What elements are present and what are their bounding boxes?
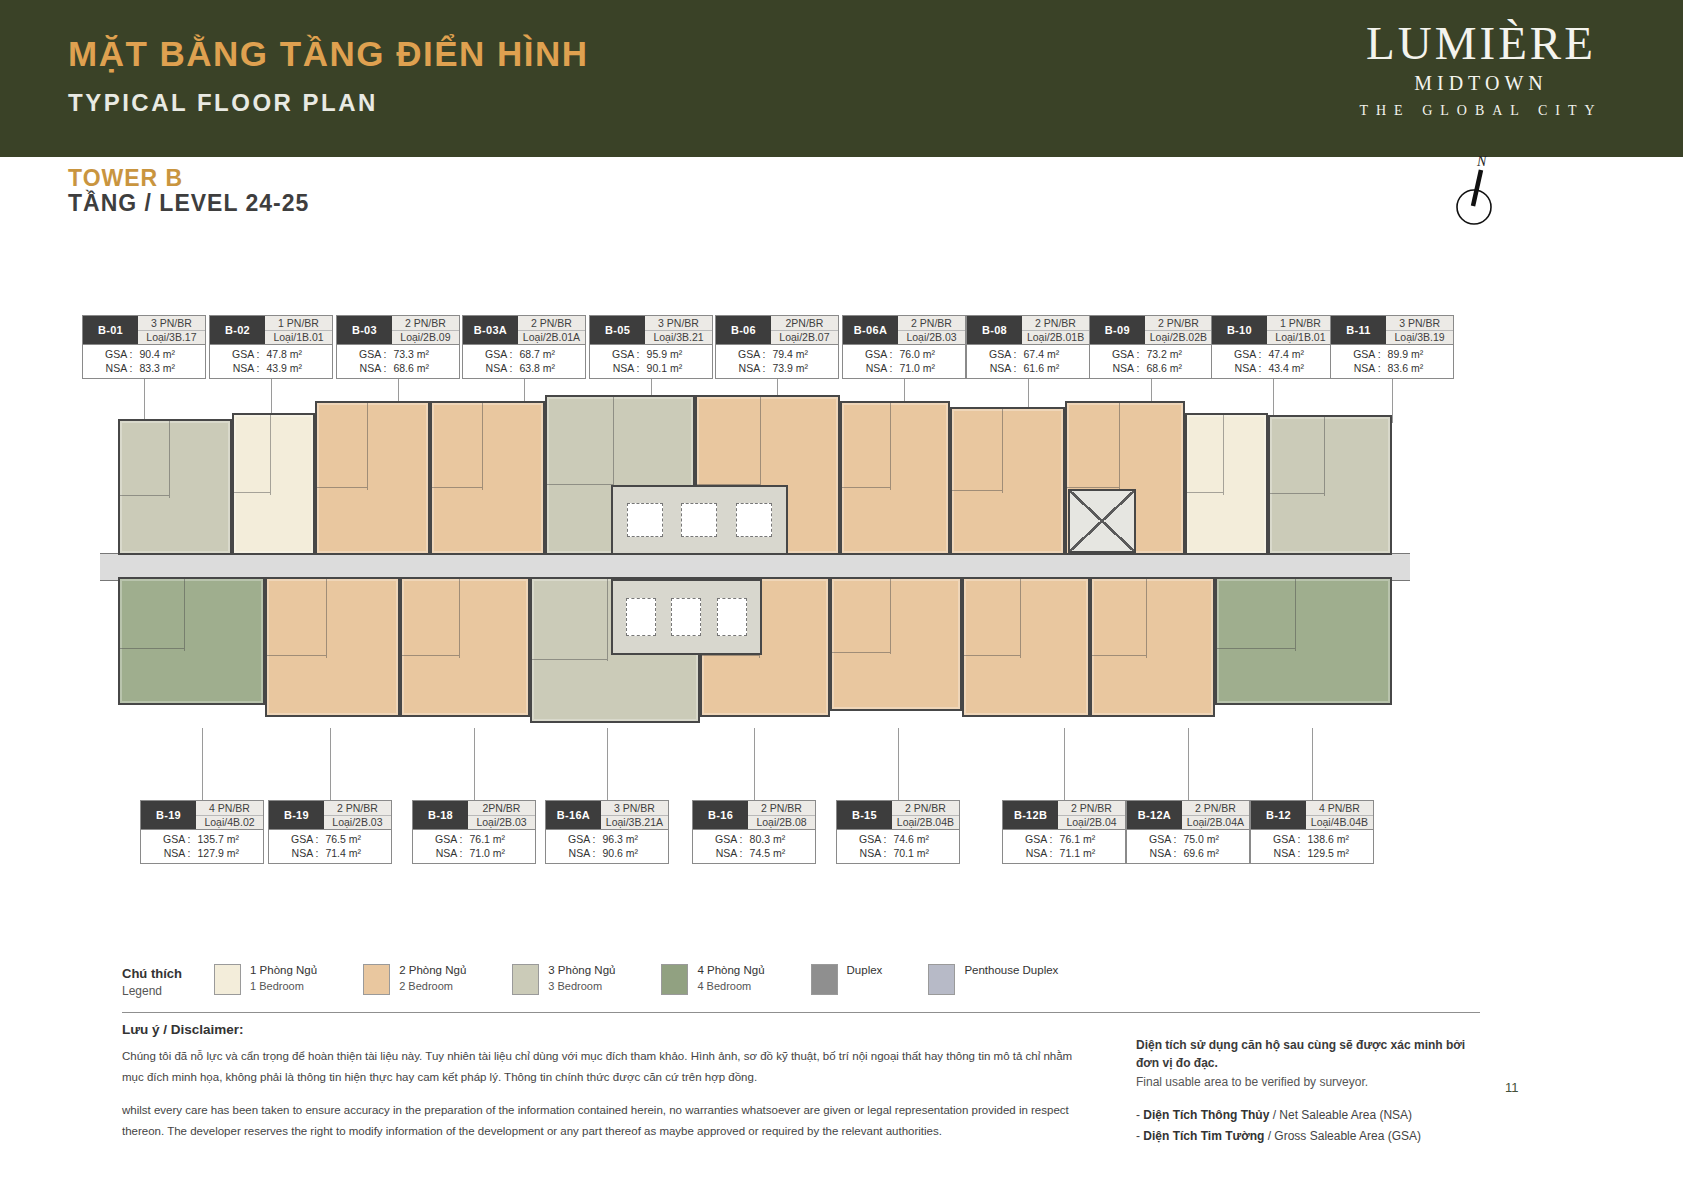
unit-card-header: B-152 PN/BRLoại/2B.04B (836, 800, 960, 830)
unit-card-header: B-053 PN/BRLoại/3B.21 (589, 315, 713, 345)
unit-nsa-row: NSA :90.6 m² (550, 846, 664, 860)
elevator-shaft (671, 598, 701, 636)
gsa-value: 68.7 m² (519, 347, 571, 361)
legend-item-labels: Penthouse Duplex (964, 964, 1058, 995)
plan-unit-b-12a (1090, 577, 1215, 717)
gsa-value: 90.4 m² (139, 347, 191, 361)
plan-unit-b-01 (118, 419, 232, 555)
elevator-shaft (717, 598, 747, 636)
unit-card-header: B-062PN/BRLoại/2B.07 (715, 315, 839, 345)
plan-unit-b-12 (1215, 577, 1392, 705)
legend-color-swatch (214, 964, 241, 995)
legend-label-vi: Penthouse Duplex (964, 964, 1058, 976)
unit-layout-type: Loại/3B.21 (645, 330, 712, 345)
unit-nsa-row: NSA :83.3 m² (87, 361, 201, 375)
legend-item-labels: 3 Phòng Ngủ3 Bedroom (548, 964, 615, 995)
nsa-value: 69.6 m² (1183, 846, 1235, 860)
unit-code: B-02 (210, 316, 265, 344)
nsa-label: NSA : (1103, 361, 1139, 375)
unit-type-cell: 2PN/BRLoại/2B.03 (468, 801, 535, 829)
nsa-label: NSA : (96, 361, 132, 375)
gsa-label: GSA : (559, 832, 595, 846)
unit-areas: GSA :76.0 m²NSA :71.0 m² (842, 345, 966, 379)
logo-name: LUMIÈRE (1331, 18, 1631, 70)
elevator-shaft (681, 503, 717, 538)
unit-code: B-12B (1003, 801, 1058, 829)
nsa-value: 71.1 m² (1060, 846, 1112, 860)
unit-type-cell: 2 PN/BRLoại/2B.04A (1182, 801, 1249, 829)
legend-item-labels: 4 Phòng Ngủ4 Bedroom (697, 964, 764, 995)
gsa-value: 67.4 m² (1024, 347, 1076, 361)
plan-unit-b-06a (840, 401, 950, 555)
legend-color-swatch (512, 964, 539, 995)
nsa-label: NSA : (1017, 846, 1053, 860)
gsa-value: 47.8 m² (267, 347, 319, 361)
plan-unit-b-03a (430, 401, 545, 555)
unit-nsa-row: NSA :69.6 m² (1131, 846, 1245, 860)
gsa-label: GSA : (1225, 347, 1261, 361)
plan-unit-b-15 (830, 577, 962, 711)
unit-gsa-row: GSA :89.9 m² (1335, 347, 1449, 361)
unit-card-header: B-032 PN/BRLoại/2B.09 (336, 315, 460, 345)
disclaimer-text-vi: Chúng tôi đã nỗ lực và cẩn trọng để hoàn… (122, 1046, 1084, 1089)
unit-nsa-row: NSA :43.4 m² (1216, 361, 1330, 375)
legend-color-swatch (928, 964, 955, 995)
legend-item: 4 Phòng Ngủ4 Bedroom (661, 964, 764, 995)
gsa-label: GSA : (1103, 347, 1139, 361)
unit-nsa-row: NSA :68.6 m² (341, 361, 455, 375)
nsa-value: 83.6 m² (1388, 361, 1440, 375)
unit-nsa-row: NSA :71.0 m² (847, 361, 961, 375)
legend-label-vi: 4 Phòng Ngủ (697, 964, 764, 976)
unit-gsa-row: GSA :90.4 m² (87, 347, 201, 361)
nsa-label: NSA : (282, 846, 318, 860)
unit-layout-type: Loại/3B.17 (138, 330, 205, 345)
unit-nsa-row: NSA :74.5 m² (697, 846, 811, 860)
unit-card-b-16: B-162 PN/BRLoại/2B.08GSA :80.3 m²NSA :74… (692, 800, 816, 864)
gsa-value: 135.7 m² (198, 832, 250, 846)
gsa-label: GSA : (1017, 832, 1053, 846)
page-title-vi: MẶT BẰNG TẦNG ĐIỂN HÌNH (68, 34, 589, 74)
nsa-value: 71.0 m² (469, 846, 521, 860)
unit-card-header: B-194 PN/BRLoại/4B.02 (140, 800, 264, 830)
unit-type-cell: 3 PN/BRLoại/3B.17 (138, 316, 205, 344)
unit-code: B-05 (590, 316, 645, 344)
nsa-label: NSA : (981, 361, 1017, 375)
unit-code: B-10 (1212, 316, 1267, 344)
gsa-label: GSA : (96, 347, 132, 361)
legend-label-vi: 3 Phòng Ngủ (548, 964, 615, 976)
gsa-label: GSA : (1140, 832, 1176, 846)
unit-card-b-12b: B-12B2 PN/BRLoại/2B.04GSA :76.1 m²NSA :7… (1002, 800, 1126, 864)
unit-layout-type: Loại/2B.01B (1022, 330, 1089, 345)
unit-card-b-06: B-062PN/BRLoại/2B.07GSA :79.4 m²NSA :73.… (715, 315, 839, 379)
unit-code: B-19 (141, 801, 196, 829)
gsa-value: 76.5 m² (325, 832, 377, 846)
unit-nsa-row: NSA :73.9 m² (720, 361, 834, 375)
unit-areas: GSA :138.6 m²NSA :129.5 m² (1250, 830, 1374, 864)
unit-bedroom-type: 1 PN/BR (265, 316, 332, 330)
unit-areas: GSA :76.1 m²NSA :71.0 m² (412, 830, 536, 864)
unit-type-cell: 1 PN/BRLoại/1B.01 (265, 316, 332, 344)
plan-unit-b-18 (400, 577, 530, 717)
unit-nsa-row: NSA :68.6 m² (1094, 361, 1208, 375)
unit-card-b-18: B-182PN/BRLoại/2B.03GSA :76.1 m²NSA :71.… (412, 800, 536, 864)
unit-card-header: B-021 PN/BRLoại/1B.01 (209, 315, 333, 345)
unit-card-header: B-113 PN/BRLoại/3B.19 (1330, 315, 1454, 345)
unit-nsa-row: NSA :90.1 m² (594, 361, 708, 375)
area-note-bullets: - Diện Tích Thông Thủy / Net Saleable Ar… (1136, 1105, 1486, 1147)
legend-item-labels: 2 Phòng Ngủ2 Bedroom (399, 964, 466, 995)
unit-type-cell: 2 PN/BRLoại/2B.04B (892, 801, 959, 829)
unit-gsa-row: GSA :76.5 m² (273, 832, 387, 846)
unit-bedroom-type: 2 PN/BR (1058, 801, 1125, 815)
unit-gsa-row: GSA :95.9 m² (594, 347, 708, 361)
gsa-value: 95.9 m² (647, 347, 699, 361)
gsa-label: GSA : (981, 347, 1017, 361)
gsa-label: GSA : (729, 347, 765, 361)
unit-layout-type: Loại/4B.02 (196, 815, 263, 830)
unit-card-b-02: B-021 PN/BRLoại/1B.01GSA :47.8 m²NSA :43… (209, 315, 333, 379)
unit-nsa-row: NSA :83.6 m² (1335, 361, 1449, 375)
header-band: MẶT BẰNG TẦNG ĐIỂN HÌNH TYPICAL FLOOR PL… (0, 0, 1683, 157)
nsa-label: NSA : (857, 361, 893, 375)
disclaimer-text-en: whilst every care has been taken to ensu… (122, 1100, 1084, 1143)
area-note-bullet: - Diện Tích Tim Tường / Gross Saleable A… (1136, 1126, 1486, 1147)
gsa-value: 96.3 m² (602, 832, 654, 846)
unit-areas: GSA :75.0 m²NSA :69.6 m² (1126, 830, 1250, 864)
unit-card-b-06a: B-06A2 PN/BRLoại/2B.03GSA :76.0 m²NSA :7… (842, 315, 966, 379)
unit-card-header: B-124 PN/BRLoại/4B.04B (1250, 800, 1374, 830)
nsa-value: 74.5 m² (750, 846, 802, 860)
unit-bedroom-type: 3 PN/BR (138, 316, 205, 330)
nsa-value: 90.1 m² (647, 361, 699, 375)
level-label: TẦNG / LEVEL 24-25 (68, 190, 309, 217)
gsa-label: GSA : (224, 347, 260, 361)
legend-label-vi: 1 Phòng Ngủ (250, 964, 317, 976)
unit-bedroom-type: 2 PN/BR (892, 801, 959, 815)
gsa-value: 73.3 m² (393, 347, 445, 361)
bottom-unit-cards-row: B-194 PN/BRLoại/4B.02GSA :135.7 m²NSA :1… (0, 800, 1683, 864)
unit-layout-type: Loại/2B.04A (1182, 815, 1249, 830)
unit-card-b-12: B-124 PN/BRLoại/4B.04BGSA :138.6 m²NSA :… (1250, 800, 1374, 864)
legend-label-en: 1 Bedroom (250, 980, 317, 992)
legend-color-swatch (661, 964, 688, 995)
area-note-bullet-strong: Diện Tích Thông Thủy (1143, 1108, 1269, 1122)
legend-title: Chú thích Legend (122, 966, 214, 998)
plan-unit-b-12b (962, 577, 1090, 717)
nsa-label: NSA : (1140, 846, 1176, 860)
stair-core (1068, 489, 1136, 553)
unit-card-b-01: B-013 PN/BRLoại/3B.17GSA :90.4 m²NSA :83… (82, 315, 206, 379)
legend-label-vi: 2 Phòng Ngủ (399, 964, 466, 976)
unit-gsa-row: GSA :68.7 m² (467, 347, 581, 361)
unit-card-b-10: B-101 PN/BRLoại/1B.01GSA :47.4 m²NSA :43… (1211, 315, 1335, 379)
unit-card-b-11: B-113 PN/BRLoại/3B.19GSA :89.9 m²NSA :83… (1330, 315, 1454, 379)
unit-bedroom-type: 2 PN/BR (748, 801, 815, 815)
unit-bedroom-type: 2 PN/BR (898, 316, 965, 330)
unit-areas: GSA :68.7 m²NSA :63.8 m² (462, 345, 586, 379)
unit-type-cell: 4 PN/BRLoại/4B.02 (196, 801, 263, 829)
unit-card-header: B-12A2 PN/BRLoại/2B.04A (1126, 800, 1250, 830)
nsa-label: NSA : (729, 361, 765, 375)
unit-gsa-row: GSA :75.0 m² (1131, 832, 1245, 846)
unit-areas: GSA :73.3 m²NSA :68.6 m² (336, 345, 460, 379)
unit-layout-type: Loại/1B.01 (265, 330, 332, 345)
unit-areas: GSA :96.3 m²NSA :90.6 m² (545, 830, 669, 864)
logo-subtitle: MIDTOWN (1331, 72, 1631, 95)
unit-gsa-row: GSA :47.8 m² (214, 347, 328, 361)
unit-layout-type: Loại/2B.09 (392, 330, 459, 345)
legend-label-en: 4 Bedroom (697, 980, 764, 992)
unit-layout-type: Loại/2B.07 (771, 330, 838, 345)
nsa-value: 43.4 m² (1268, 361, 1320, 375)
unit-gsa-row: GSA :76.1 m² (417, 832, 531, 846)
gsa-label: GSA : (350, 347, 386, 361)
unit-code: B-11 (1331, 316, 1386, 344)
unit-bedroom-type: 2 PN/BR (1182, 801, 1249, 815)
nsa-label: NSA : (1264, 846, 1300, 860)
unit-layout-type: Loại/2B.03 (468, 815, 535, 830)
unit-code: B-08 (967, 316, 1022, 344)
unit-card-b-05: B-053 PN/BRLoại/3B.21GSA :95.9 m²NSA :90… (589, 315, 713, 379)
unit-card-header: B-192 PN/BRLoại/2B.03 (268, 800, 392, 830)
unit-gsa-row: GSA :76.1 m² (1007, 832, 1121, 846)
unit-card-header: B-092 PN/BRLoại/2B.02B (1089, 315, 1213, 345)
unit-type-cell: 2 PN/BRLoại/2B.04 (1058, 801, 1125, 829)
nsa-value: 71.4 m² (325, 846, 377, 860)
plan-unit-b-10 (1185, 413, 1268, 555)
gsa-label: GSA : (476, 347, 512, 361)
unit-nsa-row: NSA :61.6 m² (971, 361, 1085, 375)
nsa-label: NSA : (1345, 361, 1381, 375)
plan-unit-b-19 (118, 577, 265, 705)
unit-nsa-row: NSA :70.1 m² (841, 846, 955, 860)
gsa-label: GSA : (1264, 832, 1300, 846)
unit-bedroom-type: 4 PN/BR (1306, 801, 1373, 815)
nsa-value: 43.9 m² (267, 361, 319, 375)
legend-item: 3 Phòng Ngủ3 Bedroom (512, 964, 615, 995)
unit-layout-type: Loại/2B.03 (324, 815, 391, 830)
gsa-label: GSA : (707, 832, 743, 846)
gsa-label: GSA : (282, 832, 318, 846)
unit-card-header: B-082 PN/BRLoại/2B.01B (966, 315, 1090, 345)
unit-layout-type: Loại/3B.19 (1386, 330, 1453, 345)
unit-bedroom-type: 2PN/BR (468, 801, 535, 815)
legend-color-swatch (811, 964, 838, 995)
legend-title-en: Legend (122, 984, 214, 998)
unit-card-b-16a: B-16A3 PN/BRLoại/3B.21AGSA :96.3 m²NSA :… (545, 800, 669, 864)
legend-color-swatch (363, 964, 390, 995)
unit-bedroom-type: 3 PN/BR (1386, 316, 1453, 330)
legend-item: 1 Phòng Ngủ1 Bedroom (214, 964, 317, 995)
unit-gsa-row: GSA :74.6 m² (841, 832, 955, 846)
logo-tagline: THE GLOBAL CITY (1331, 103, 1631, 119)
legend-item: 2 Phòng Ngủ2 Bedroom (363, 964, 466, 995)
unit-areas: GSA :79.4 m²NSA :73.9 m² (715, 345, 839, 379)
unit-areas: GSA :74.6 m²NSA :70.1 m² (836, 830, 960, 864)
unit-card-header: B-182PN/BRLoại/2B.03 (412, 800, 536, 830)
nsa-label: NSA : (707, 846, 743, 860)
gsa-value: 80.3 m² (750, 832, 802, 846)
nsa-label: NSA : (224, 361, 260, 375)
unit-gsa-row: GSA :73.2 m² (1094, 347, 1208, 361)
unit-card-b-12a: B-12A2 PN/BRLoại/2B.04AGSA :75.0 m²NSA :… (1126, 800, 1250, 864)
unit-code: B-01 (83, 316, 138, 344)
disclaimer-block: Lưu ý / Disclaimer: Chúng tôi đã nỗ lực … (122, 1022, 1084, 1153)
plan-unit-b-08 (950, 407, 1065, 555)
unit-code: B-12 (1251, 801, 1306, 829)
unit-card-header: B-03A2 PN/BRLoại/2B.01A (462, 315, 586, 345)
area-note-bullet: - Diện Tích Thông Thủy / Net Saleable Ar… (1136, 1105, 1486, 1126)
unit-code: B-06 (716, 316, 771, 344)
unit-code: B-16A (546, 801, 601, 829)
legend-label-en: 3 Bedroom (548, 980, 615, 992)
nsa-value: 63.8 m² (519, 361, 571, 375)
north-label: N (1476, 154, 1487, 169)
unit-bedroom-type: 2PN/BR (771, 316, 838, 330)
nsa-value: 129.5 m² (1307, 846, 1359, 860)
unit-layout-type: Loại/2B.04 (1058, 815, 1125, 830)
unit-bedroom-type: 3 PN/BR (601, 801, 668, 815)
gsa-value: 76.1 m² (1060, 832, 1112, 846)
unit-areas: GSA :47.8 m²NSA :43.9 m² (209, 345, 333, 379)
plan-unit-b-03 (315, 401, 430, 555)
tower-label: TOWER B (68, 165, 183, 192)
unit-card-b-19: B-192 PN/BRLoại/2B.03GSA :76.5 m²NSA :71… (268, 800, 392, 864)
gsa-label: GSA : (155, 832, 191, 846)
gsa-label: GSA : (426, 832, 462, 846)
nsa-value: 127.9 m² (198, 846, 250, 860)
unit-card-b-09: B-092 PN/BRLoại/2B.02BGSA :73.2 m²NSA :6… (1089, 315, 1213, 379)
unit-bedroom-type: 2 PN/BR (324, 801, 391, 815)
unit-bedroom-type: 2 PN/BR (392, 316, 459, 330)
unit-gsa-row: GSA :73.3 m² (341, 347, 455, 361)
nsa-value: 68.6 m² (393, 361, 445, 375)
unit-areas: GSA :76.5 m²NSA :71.4 m² (268, 830, 392, 864)
unit-card-b-08: B-082 PN/BRLoại/2B.01BGSA :67.4 m²NSA :6… (966, 315, 1090, 379)
unit-areas: GSA :47.4 m²NSA :43.4 m² (1211, 345, 1335, 379)
unit-type-cell: 4 PN/BRLoại/4B.04B (1306, 801, 1373, 829)
unit-areas: GSA :95.9 m²NSA :90.1 m² (589, 345, 713, 379)
top-unit-cards-row: B-013 PN/BRLoại/3B.17GSA :90.4 m²NSA :83… (0, 315, 1683, 379)
unit-layout-type: Loại/2B.02B (1145, 330, 1212, 345)
page-number: 11 (1505, 1080, 1519, 1095)
area-note-en: Final usable area to be verified by surv… (1136, 1075, 1486, 1089)
unit-code: B-15 (837, 801, 892, 829)
gsa-value: 138.6 m² (1307, 832, 1359, 846)
unit-type-cell: 3 PN/BRLoại/3B.19 (1386, 316, 1453, 344)
unit-card-b-15: B-152 PN/BRLoại/2B.04BGSA :74.6 m²NSA :7… (836, 800, 960, 864)
unit-nsa-row: NSA :43.9 m² (214, 361, 328, 375)
unit-code: B-06A (843, 316, 898, 344)
unit-nsa-row: NSA :71.0 m² (417, 846, 531, 860)
north-compass-icon: N (1444, 152, 1508, 230)
unit-gsa-row: GSA :96.3 m² (550, 832, 664, 846)
unit-bedroom-type: 2 PN/BR (1022, 316, 1089, 330)
unit-bedroom-type: 2 PN/BR (518, 316, 585, 330)
unit-layout-type: Loại/2B.03 (898, 330, 965, 345)
unit-areas: GSA :67.4 m²NSA :61.6 m² (966, 345, 1090, 379)
gsa-value: 76.1 m² (469, 832, 521, 846)
gsa-label: GSA : (604, 347, 640, 361)
unit-nsa-row: NSA :63.8 m² (467, 361, 581, 375)
unit-layout-type: Loại/4B.04B (1306, 815, 1373, 830)
unit-areas: GSA :89.9 m²NSA :83.6 m² (1330, 345, 1454, 379)
legend-item-labels: Duplex (847, 964, 883, 995)
area-note-bullet-strong: Diện Tích Tim Tường (1143, 1129, 1264, 1143)
elevator-shaft (627, 503, 663, 538)
unit-card-header: B-06A2 PN/BRLoại/2B.03 (842, 315, 966, 345)
unit-bedroom-type: 1 PN/BR (1267, 316, 1334, 330)
legend-item-labels: 1 Phòng Ngủ1 Bedroom (250, 964, 317, 995)
gsa-value: 47.4 m² (1268, 347, 1320, 361)
page-title-en: TYPICAL FLOOR PLAN (68, 89, 378, 117)
nsa-value: 83.3 m² (139, 361, 191, 375)
nsa-label: NSA : (850, 846, 886, 860)
unit-layout-type: Loại/2B.04B (892, 815, 959, 830)
legend-label-vi: Duplex (847, 964, 883, 976)
nsa-label: NSA : (426, 846, 462, 860)
unit-layout-type: Loại/1B.01 (1267, 330, 1334, 345)
unit-nsa-row: NSA :71.4 m² (273, 846, 387, 860)
unit-card-header: B-013 PN/BRLoại/3B.17 (82, 315, 206, 345)
unit-code: B-16 (693, 801, 748, 829)
nsa-value: 71.0 m² (900, 361, 952, 375)
unit-layout-type: Loại/2B.08 (748, 815, 815, 830)
nsa-value: 70.1 m² (893, 846, 945, 860)
unit-type-cell: 1 PN/BRLoại/1B.01 (1267, 316, 1334, 344)
gsa-value: 79.4 m² (772, 347, 824, 361)
unit-type-cell: 3 PN/BRLoại/3B.21A (601, 801, 668, 829)
unit-card-b-03: B-032 PN/BRLoại/2B.09GSA :73.3 m²NSA :68… (336, 315, 460, 379)
plan-unit-b-11 (1268, 415, 1392, 555)
footer-divider (122, 1012, 1480, 1013)
unit-areas: GSA :90.4 m²NSA :83.3 m² (82, 345, 206, 379)
nsa-label: NSA : (155, 846, 191, 860)
unit-code: B-03 (337, 316, 392, 344)
gsa-value: 76.0 m² (900, 347, 952, 361)
unit-nsa-row: NSA :127.9 m² (145, 846, 259, 860)
unit-gsa-row: GSA :135.7 m² (145, 832, 259, 846)
unit-nsa-row: NSA :71.1 m² (1007, 846, 1121, 860)
unit-card-header: B-12B2 PN/BRLoại/2B.04 (1002, 800, 1126, 830)
legend-title-vi: Chú thích (122, 966, 214, 981)
unit-layout-type: Loại/3B.21A (601, 815, 668, 830)
unit-card-header: B-16A3 PN/BRLoại/3B.21A (545, 800, 669, 830)
lumiere-logo: LUMIÈRE MIDTOWN THE GLOBAL CITY (1331, 18, 1631, 119)
nsa-value: 73.9 m² (772, 361, 824, 375)
unit-code: B-18 (413, 801, 468, 829)
legend-label-en: 2 Bedroom (399, 980, 466, 992)
unit-gsa-row: GSA :79.4 m² (720, 347, 834, 361)
nsa-label: NSA : (1225, 361, 1261, 375)
unit-code: B-03A (463, 316, 518, 344)
legend-item: Duplex (811, 964, 883, 995)
nsa-label: NSA : (559, 846, 595, 860)
nsa-value: 68.6 m² (1146, 361, 1198, 375)
unit-code: B-09 (1090, 316, 1145, 344)
elevator-shaft (626, 598, 656, 636)
legend: Chú thích Legend 1 Phòng Ngủ1 Bedroom2 P… (122, 964, 1104, 998)
gsa-value: 74.6 m² (893, 832, 945, 846)
unit-type-cell: 2 PN/BRLoại/2B.03 (324, 801, 391, 829)
unit-areas: GSA :76.1 m²NSA :71.1 m² (1002, 830, 1126, 864)
unit-type-cell: 2 PN/BRLoại/2B.03 (898, 316, 965, 344)
gsa-value: 73.2 m² (1146, 347, 1198, 361)
unit-code: B-12A (1127, 801, 1182, 829)
unit-gsa-row: GSA :47.4 m² (1216, 347, 1330, 361)
